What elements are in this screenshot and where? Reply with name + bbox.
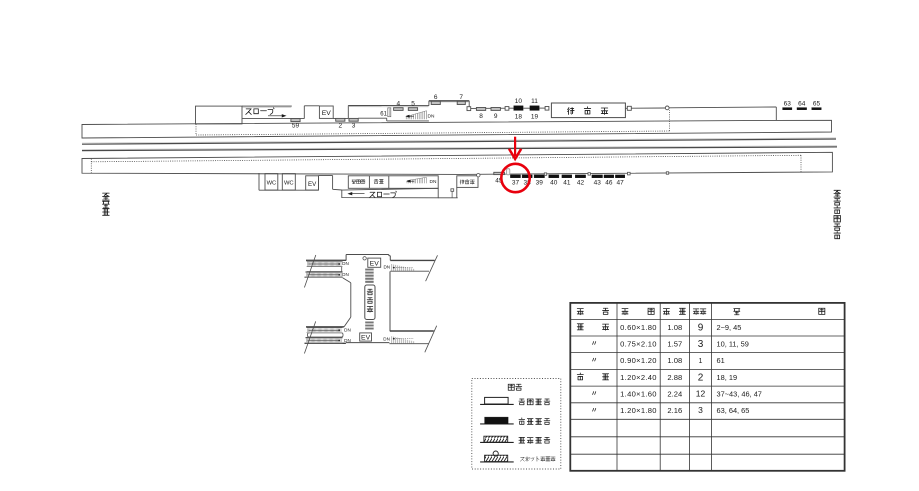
svg-text:8: 8 bbox=[479, 113, 483, 120]
svg-text:2~9, 45: 2~9, 45 bbox=[717, 323, 742, 332]
svg-text:10: 10 bbox=[515, 98, 523, 105]
svg-text:63, 64, 65: 63, 64, 65 bbox=[717, 406, 750, 415]
svg-text:1.08: 1.08 bbox=[667, 356, 682, 365]
svg-text:DN: DN bbox=[344, 338, 351, 343]
svg-text:1.08: 1.08 bbox=[667, 323, 682, 332]
svg-text:1.57: 1.57 bbox=[667, 339, 682, 348]
svg-text:3: 3 bbox=[698, 405, 703, 415]
svg-text:43: 43 bbox=[594, 179, 602, 186]
svg-text:1.40×1.60: 1.40×1.60 bbox=[620, 389, 657, 398]
svg-text:EV: EV bbox=[361, 335, 371, 342]
svg-text:11: 11 bbox=[531, 98, 538, 105]
svg-text:9: 9 bbox=[698, 322, 704, 333]
svg-text:2.16: 2.16 bbox=[667, 406, 682, 415]
svg-text:EV: EV bbox=[308, 181, 317, 188]
svg-text:DN: DN bbox=[383, 264, 390, 269]
svg-text:0.60×1.80: 0.60×1.80 bbox=[620, 323, 657, 332]
svg-text:63: 63 bbox=[784, 101, 792, 108]
svg-text:DN: DN bbox=[344, 328, 351, 333]
svg-text:46: 46 bbox=[605, 179, 613, 186]
svg-text:WC: WC bbox=[267, 181, 277, 187]
svg-text:47: 47 bbox=[616, 179, 624, 186]
svg-text:4: 4 bbox=[396, 100, 400, 107]
svg-text:2: 2 bbox=[698, 372, 704, 383]
svg-text:DN: DN bbox=[383, 336, 390, 341]
svg-text:10, 11, 59: 10, 11, 59 bbox=[717, 339, 749, 348]
svg-text:DN: DN bbox=[430, 179, 437, 185]
svg-text:WC: WC bbox=[284, 181, 294, 187]
svg-text:42: 42 bbox=[577, 179, 585, 186]
svg-text:18: 18 bbox=[515, 114, 523, 121]
svg-text:18, 19: 18, 19 bbox=[717, 373, 738, 382]
svg-text:61: 61 bbox=[717, 356, 725, 365]
svg-text:DN: DN bbox=[342, 261, 349, 266]
svg-text:2.24: 2.24 bbox=[667, 389, 682, 398]
svg-text:EV: EV bbox=[370, 260, 380, 267]
svg-text:2: 2 bbox=[338, 123, 342, 130]
svg-text:40: 40 bbox=[550, 179, 558, 186]
svg-text:64: 64 bbox=[798, 101, 806, 108]
svg-text:0.75×2.10: 0.75×2.10 bbox=[620, 339, 657, 348]
svg-text:0.90×1.20: 0.90×1.20 bbox=[620, 356, 657, 365]
svg-text:3: 3 bbox=[352, 123, 356, 130]
svg-text:19: 19 bbox=[531, 114, 539, 121]
svg-text:1: 1 bbox=[699, 358, 703, 365]
svg-text:39: 39 bbox=[536, 179, 544, 186]
svg-text:DN: DN bbox=[428, 113, 435, 119]
svg-text:EV: EV bbox=[322, 110, 332, 117]
svg-text:61: 61 bbox=[380, 111, 387, 117]
svg-text:6: 6 bbox=[434, 94, 438, 101]
svg-text:7: 7 bbox=[459, 94, 463, 101]
svg-text:1.20×1.80: 1.20×1.80 bbox=[620, 406, 657, 415]
svg-text:12: 12 bbox=[696, 388, 706, 398]
svg-text:37~43, 46, 47: 37~43, 46, 47 bbox=[717, 389, 762, 398]
svg-text:DN: DN bbox=[342, 272, 349, 277]
svg-text:59: 59 bbox=[292, 123, 300, 130]
svg-text:1.20×2.40: 1.20×2.40 bbox=[620, 373, 657, 382]
svg-text:2.88: 2.88 bbox=[667, 373, 682, 382]
svg-text:65: 65 bbox=[813, 101, 821, 108]
svg-text:3: 3 bbox=[698, 339, 704, 350]
svg-text:41: 41 bbox=[563, 179, 571, 186]
svg-text:37: 37 bbox=[512, 179, 520, 186]
svg-text:9: 9 bbox=[494, 113, 498, 120]
svg-text:5: 5 bbox=[411, 100, 415, 107]
